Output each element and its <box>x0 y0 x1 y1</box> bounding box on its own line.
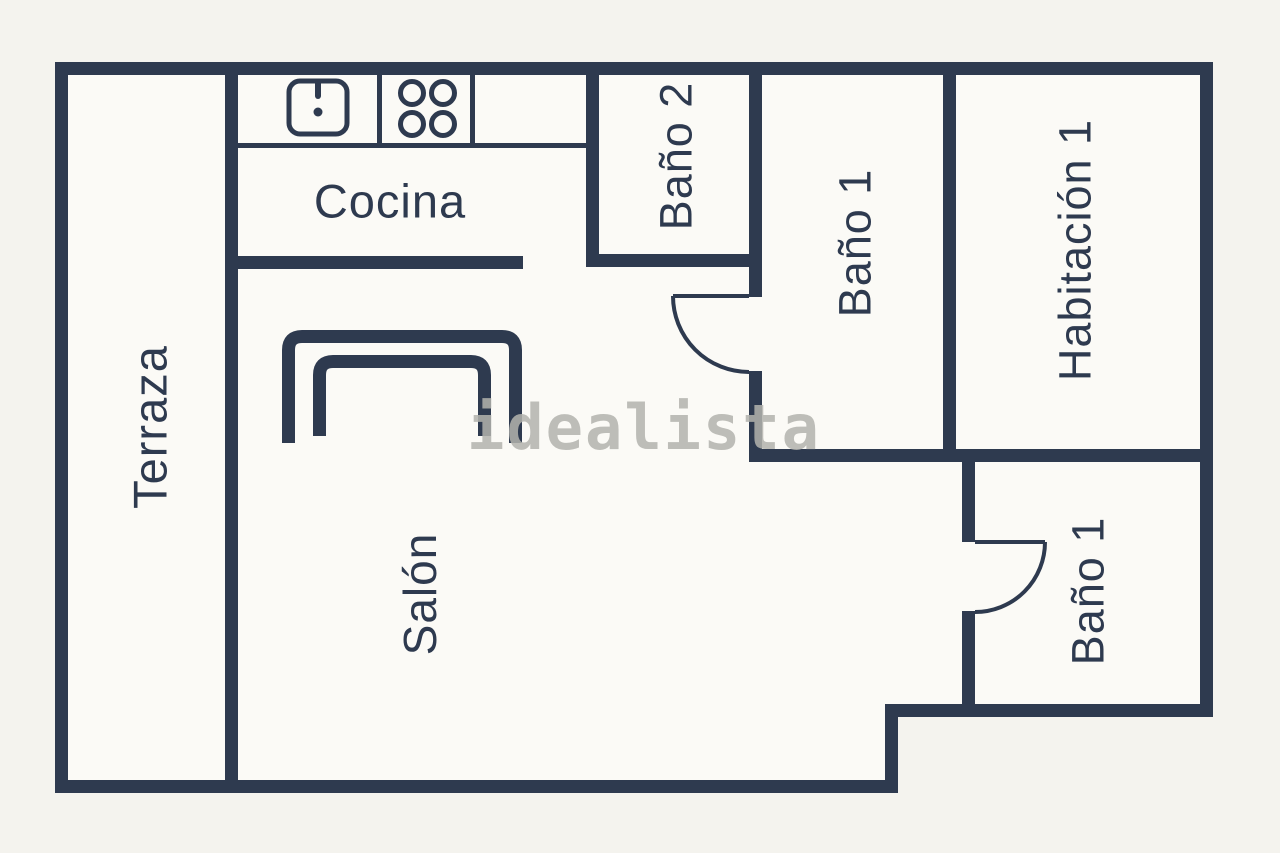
door-arc-icon <box>673 296 749 372</box>
idealista-watermark: idealista <box>467 397 821 459</box>
sink-icon <box>289 81 347 134</box>
label-bano1: Baño 1 <box>833 169 878 318</box>
door-arc-icon <box>975 542 1045 612</box>
label-bano1b: Baño 1 <box>1066 517 1111 666</box>
label-cocina: Cocina <box>314 178 466 225</box>
label-bano2: Baño 2 <box>654 82 699 231</box>
label-salon: Salón <box>397 533 443 656</box>
label-terraza: Terraza <box>127 345 174 509</box>
stove-icon <box>401 82 455 136</box>
floorplan-canvas: Terraza Cocina Baño 2 Baño 1 Habitación … <box>0 0 1280 853</box>
label-habitacion1: Habitación 1 <box>1053 119 1098 381</box>
